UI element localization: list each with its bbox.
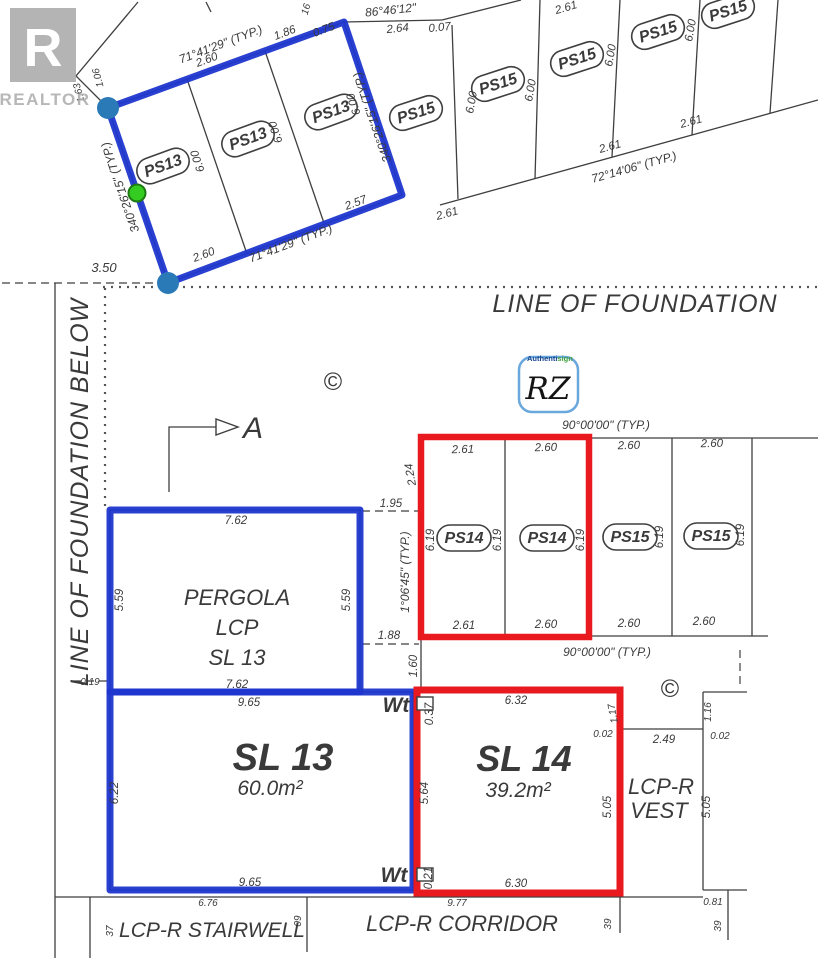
dim-label: 2.60 (534, 619, 558, 631)
ps15-block-labels: 86°46'12" 2.64 0.07 2.61 6.00 6.00 6.00 … (364, 0, 757, 223)
realtor-watermark: R REALTOR (0, 8, 91, 109)
stall-tag-ps15-3: PS15 (547, 38, 606, 79)
dim-label: 0.37 (424, 702, 436, 725)
dim-label: 6.19 (654, 525, 666, 548)
dim-label: 2.61 (451, 444, 475, 457)
dim-label: 6.19 (425, 528, 437, 551)
wt-label-top: Wt (383, 694, 411, 717)
strata-plan-drawing: 71°41'29" (TYP.) 2.60 1.86 0.75 1.63 1.0… (0, 0, 818, 958)
stall-tag-ps14-2: PS14 (520, 525, 574, 551)
dim-label: 1.06 (91, 66, 107, 88)
dim-label: 1.95 (380, 498, 403, 510)
dim-label: 0.02 (710, 731, 730, 742)
angle-label: 71°41'29" (TYP.) (247, 221, 334, 265)
dim-label: 2.61 (434, 205, 460, 223)
sl13-title: SL 13 (233, 737, 334, 779)
dim-label: 2.61 (553, 0, 579, 17)
dim-label: 0.75 (311, 20, 337, 39)
dim-label: 2.60 (617, 440, 641, 453)
offset-dim-350: 3.50 (91, 260, 117, 275)
sl14-area: 39.2m² (485, 779, 551, 802)
stall-tag-ps13-1: PS13 (133, 145, 193, 188)
pergola-subtitle: LCP (216, 615, 259, 640)
stall-tag-ps15-5: PS15 (698, 0, 757, 32)
dim-label: 2.61 (452, 620, 475, 632)
wt-label-bottom: Wt (381, 864, 409, 887)
dim-label: 5.59 (114, 588, 126, 611)
sl13-labels: 9.65 SL 13 60.0m² 6.22 9.65 6.76 (109, 697, 333, 909)
pergola-labels: 7.62 PERGOLA LCP SL 13 5.59 5.59 7.62 0.… (80, 515, 353, 691)
stall-tag-ps14-1: PS14 (437, 525, 491, 551)
dim-label: 0.02 (593, 729, 613, 740)
highlight-ps13-block-blue (108, 22, 402, 283)
corridor-label: LCP-R CORRIDOR (366, 911, 558, 936)
survey-marker-blue-top (97, 97, 119, 119)
stall-tag-ps15-row2-1: PS15 (603, 524, 657, 550)
line-of-foundation-below-label: LINE OF FOUNDATION BELOW (66, 296, 94, 686)
dim-label: 2.24 (403, 462, 419, 487)
dim-label: 09 (293, 915, 304, 927)
angle-label: 90°00'00" (TYP.) (563, 645, 651, 659)
arrowhead-icon (216, 419, 238, 435)
authentisign-stamp: Authentisign RZ (519, 354, 578, 412)
stall-label: PS15 (610, 529, 650, 546)
dim-label: 0.21 (423, 867, 435, 889)
corridor-stairwell-labels: LCP-R CORRIDOR 39 LCP-R STAIRWELL 37 09 (105, 911, 614, 942)
dim-label: 5.64 (419, 782, 431, 804)
stall-tag-ps15-4: PS15 (628, 11, 687, 52)
dim-label: 0.07 (428, 21, 452, 35)
svg-text:Authentisign: Authentisign (527, 354, 573, 363)
dim-label: 0.19 (80, 677, 100, 688)
dim-label: 2.61 (678, 113, 704, 131)
stall-label: PS13 (310, 98, 353, 127)
dim-label: 37 (105, 925, 116, 937)
dim-label: 6.19 (575, 528, 587, 551)
angle-label: 1°06'45" (TYP.) (398, 531, 412, 612)
stall-label: PS14 (527, 530, 566, 547)
stall-label: PS13 (142, 152, 185, 181)
stamp-brand-sign: sign (557, 354, 573, 363)
dim-label: 2.61 (597, 138, 623, 156)
survey-marker-blue-bottom (157, 272, 179, 294)
section-arrow-a: A (169, 412, 263, 492)
dim-label: 7.62 (225, 515, 248, 527)
realtor-logo-letter: R (24, 18, 63, 78)
stall-label: PS13 (227, 125, 270, 154)
dim-label: 2.49 (652, 734, 676, 746)
dim-label: 6.00 (267, 119, 286, 145)
dim-label: 9.65 (239, 877, 262, 889)
dim-label: 6.32 (505, 695, 528, 707)
stairwell-label: LCP-R STAIRWELL (119, 919, 305, 942)
sl14-title: SL 14 (476, 738, 571, 779)
dim-label: 2.60 (692, 616, 716, 628)
dim-label: 2.60 (617, 618, 641, 630)
dim-label: 2.60 (190, 245, 217, 265)
dim-label: 16 (300, 2, 314, 16)
dim-label: 39 (713, 920, 724, 932)
stall-tag-ps15-1: PS15 (386, 92, 445, 133)
dim-label: 2.60 (700, 438, 724, 451)
bearing-label: 86°46'12" (364, 0, 417, 19)
dim-label: 6.22 (109, 781, 121, 804)
stall-label: PS15 (691, 528, 731, 545)
stall-label: PS14 (444, 530, 483, 547)
realtor-watermark-label: REALTOR (0, 90, 91, 109)
dim-label: 2.60 (534, 442, 558, 455)
stall-tag-ps15-2: PS15 (468, 63, 527, 104)
strata-plan-page: 71°41'29" (TYP.) 2.60 1.86 0.75 1.63 1.0… (0, 0, 818, 958)
dim-label: 5.59 (341, 588, 353, 611)
dim-label: 6.00 (683, 18, 699, 43)
dim-label: 9.77 (447, 898, 467, 909)
pergola-lot: SL 13 (208, 645, 266, 670)
dim-label: 1.60 (408, 654, 420, 677)
dim-label: 6.76 (198, 898, 218, 909)
stall-label: PS15 (707, 0, 751, 26)
dim-label: 6.30 (505, 878, 528, 890)
line-of-foundation-label: LINE OF FOUNDATION (492, 290, 777, 318)
dim-label: 1.88 (378, 630, 401, 642)
angle-label: 340°26'15" (TYP.) (350, 70, 394, 164)
dim-label: 0.81 (703, 897, 722, 908)
dim-label: 9.65 (238, 697, 261, 709)
angle-label: 71°41'29" (TYP.) (177, 22, 264, 66)
vest-line1: LCP-R (628, 774, 694, 799)
dim-label: 7.62 (226, 679, 249, 691)
dim-label: 5.05 (602, 795, 614, 818)
copyright-symbol-right: © (661, 675, 680, 703)
dim-label: 1.16 (703, 702, 714, 722)
stamp-initials: RZ (525, 371, 571, 407)
dim-label: 6.19 (492, 528, 504, 551)
stamp-brand-authenti: Authenti (527, 354, 557, 363)
dim-label: 5.05 (701, 795, 713, 818)
vest-line2: VEST (630, 798, 689, 823)
dim-label: 2.64 (385, 22, 410, 36)
sl14-labels: 0.37 6.32 SL 14 39.2m² 5.64 1.17 0.02 5.… (419, 695, 621, 909)
dim-label: 39 (603, 918, 614, 930)
stall-tag-ps15-row2-2: PS15 (684, 523, 738, 549)
copyright-symbol-top: © (324, 368, 343, 396)
angle-label: 90°00'00" (TYP.) (562, 418, 650, 432)
dim-label: 6.00 (189, 148, 208, 174)
stall-tag-ps13-2: PS13 (218, 118, 278, 161)
pergola-title: PERGOLA (184, 585, 290, 610)
section-letter: A (241, 412, 263, 445)
sl13-area: 60.0m² (237, 777, 303, 800)
